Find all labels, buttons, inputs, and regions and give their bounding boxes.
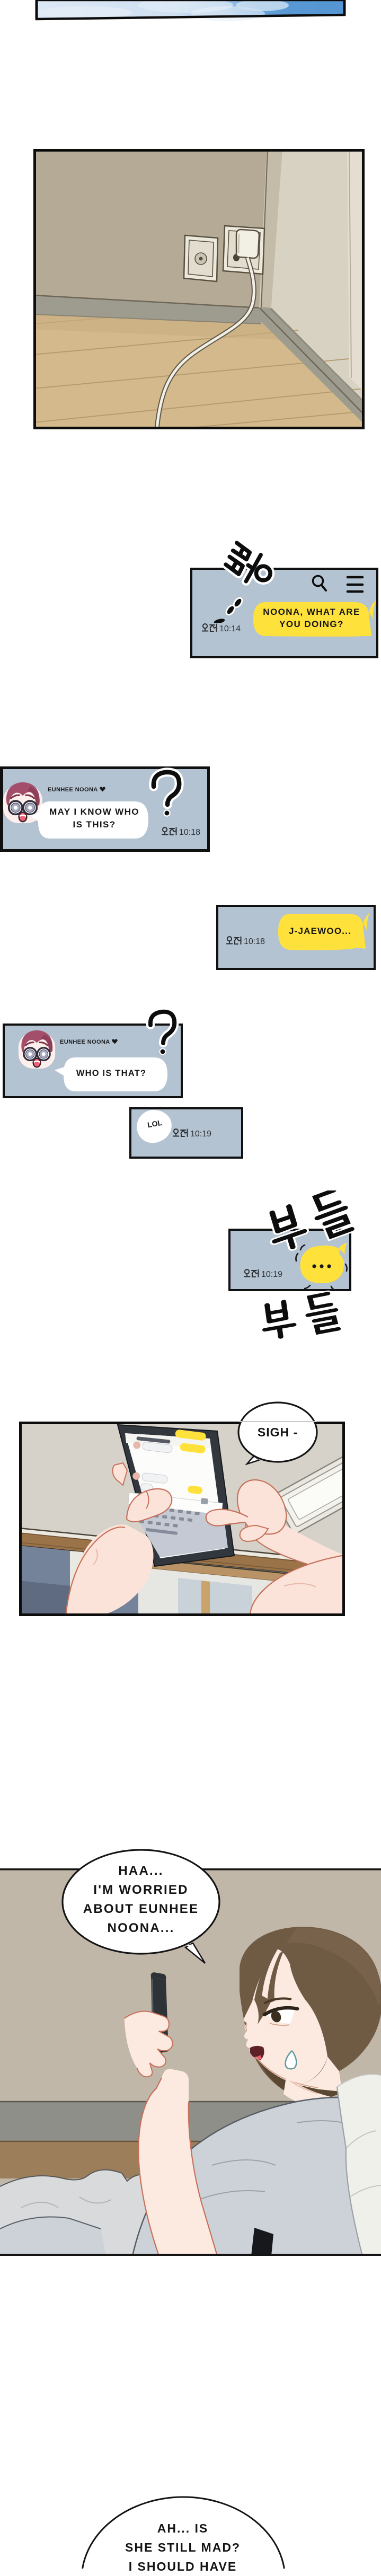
svg-text:SIGH -: SIGH - xyxy=(258,1425,298,1439)
svg-text:10:19: 10:19 xyxy=(261,1270,282,1279)
svg-text:10:18: 10:18 xyxy=(179,828,200,837)
svg-text:10:19: 10:19 xyxy=(190,1130,211,1139)
svg-text:10:18: 10:18 xyxy=(244,937,265,946)
svg-text:10:14: 10:14 xyxy=(219,624,241,633)
